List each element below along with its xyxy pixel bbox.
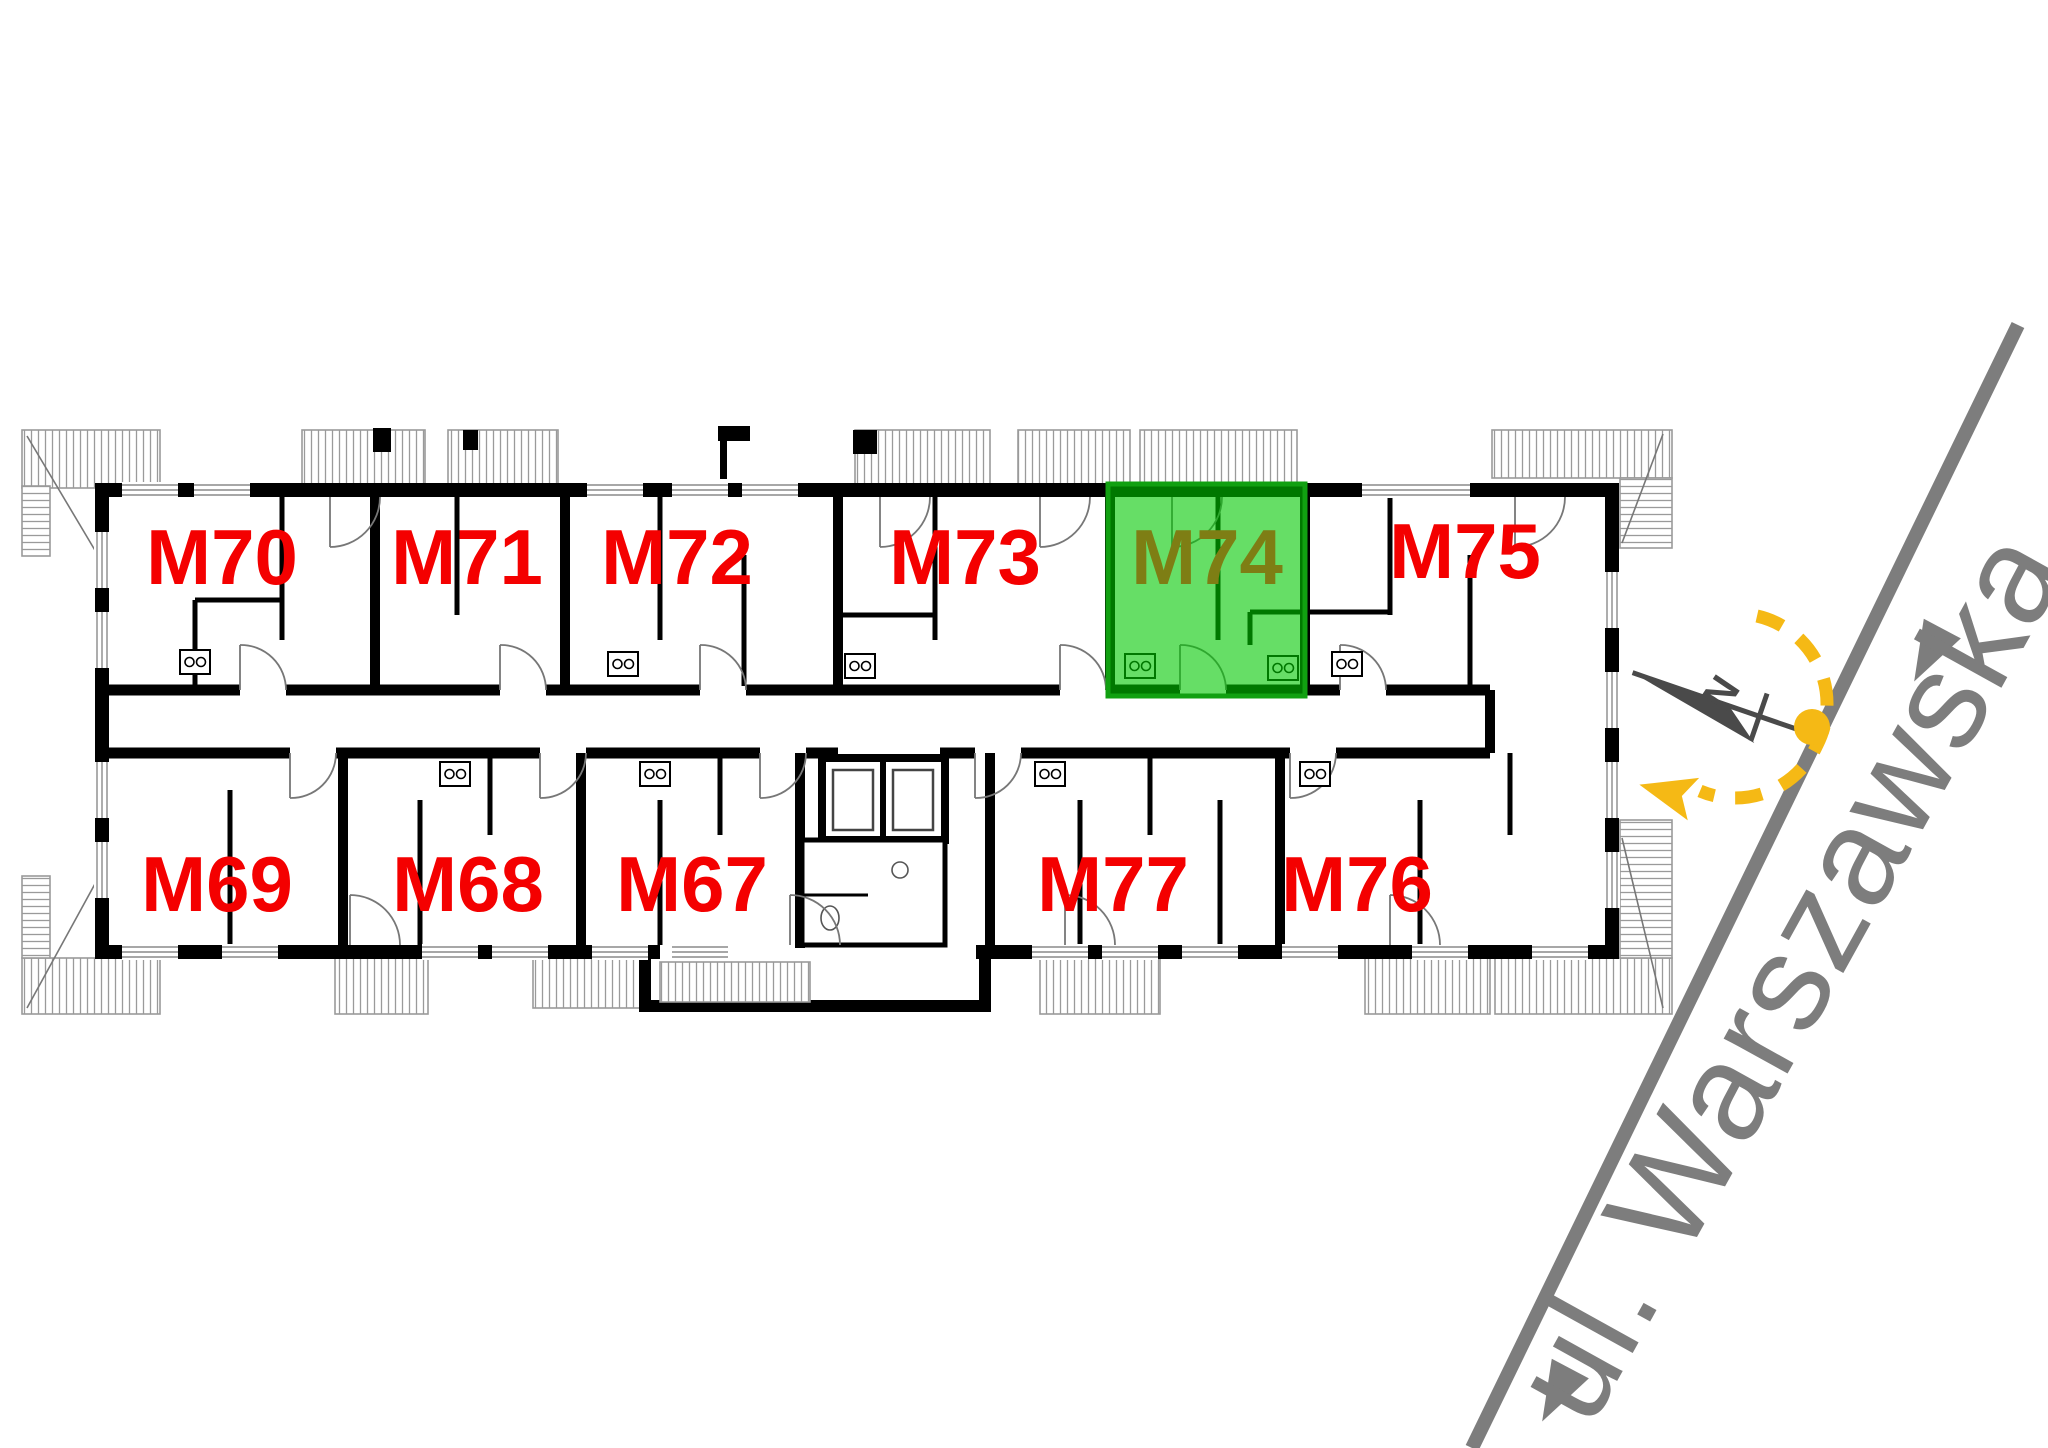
elevator-core [802,758,945,945]
unit-label-m77[interactable]: M77 [1037,840,1189,928]
unit-label-m71[interactable]: M71 [391,513,543,601]
balcony [1140,430,1297,487]
unit-label-m72[interactable]: M72 [601,513,753,601]
unit-label-m74[interactable]: M74 [1131,513,1283,601]
sun-dot [1794,709,1830,745]
core-room [802,840,945,945]
north-arrow: N [1624,644,1805,754]
unit-label-m76[interactable]: M76 [1281,840,1433,928]
unit-label-m70[interactable]: M70 [146,513,298,601]
balcony [335,958,428,1014]
balcony [1018,430,1130,487]
balcony [533,958,645,1008]
floor-plan-canvas: ul. Warszawska N [0,0,2048,1448]
floor-plan-page: ul. Warszawska N [0,0,2048,1448]
entrance-canopy-hatch [660,962,810,1002]
sun-path-arrowhead [1634,763,1699,820]
unit-label-m73[interactable]: M73 [889,513,1041,601]
unit-label-m75[interactable]: M75 [1389,507,1541,595]
balcony [302,430,425,487]
unit-label-m69[interactable]: M69 [141,840,293,928]
balcony [1040,958,1160,1014]
balcony [1365,958,1490,1014]
unit-label-m68[interactable]: M68 [392,840,544,928]
unit-label-m67[interactable]: M67 [616,840,768,928]
